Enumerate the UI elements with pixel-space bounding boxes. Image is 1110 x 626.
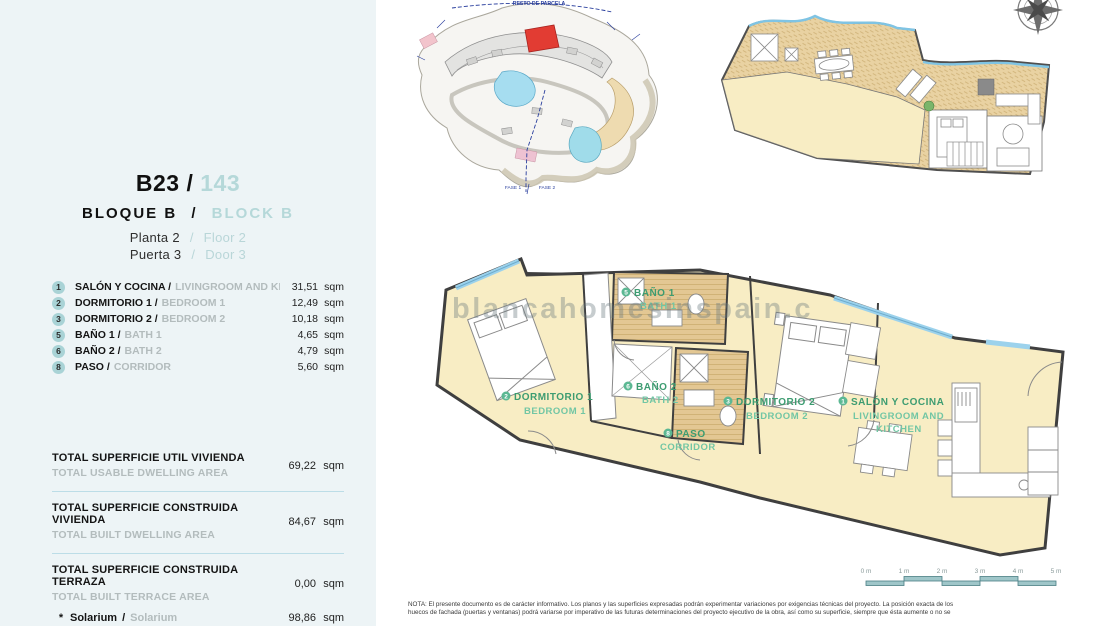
bath1-es: BAÑO 1 [634, 286, 675, 299]
room-area: 31,51 [280, 281, 318, 293]
note-line-2: huecos de fachada (puertas y ventanas) p… [408, 609, 1108, 617]
total-terrace-block: TOTAL SUPERFICIE CONSTRUIDA TERRAZA TOTA… [52, 556, 344, 626]
salon-en1: LIVINGROOM AND [853, 411, 944, 422]
room-label-es: DORMITORIO 1 / [75, 297, 158, 309]
site-fase1-label: FASE 1 [505, 185, 522, 191]
roof-plant [924, 101, 934, 111]
salon-es: SALÓN Y COCINA [851, 395, 944, 408]
solarium-label-en: Solarium [130, 612, 276, 624]
room-label-es: BAÑO 2 / [75, 345, 121, 357]
total-label-es: TOTAL SUPERFICIE UTIL VIVIENDA [52, 452, 276, 464]
room-unit: sqm [318, 297, 344, 309]
site-resto-label: RESTO DE PARCELA [513, 1, 566, 7]
solarium-label-es: Solarium [70, 612, 117, 624]
total-label-en: TOTAL BUILT TERRACE AREA [52, 591, 276, 603]
room-row-bath1: 5 BAÑO 1 / BATH 1 4,65 sqm [52, 327, 344, 343]
room-row-salon: 1 SALÓN Y COCINA / LIVINGROOM AND KITCHE… [52, 279, 344, 295]
bath2-en: BATH 2 [642, 395, 679, 406]
roof-jacuzzi [1003, 124, 1023, 144]
room-area: 10,18 [280, 313, 318, 325]
divider [52, 553, 344, 554]
room-label-en: BATH 2 [125, 345, 280, 357]
room-label-es: BAÑO 1 / [75, 329, 121, 341]
site-pool-2 [569, 127, 601, 163]
floor-sep: / [184, 230, 200, 245]
roof-gray-unit [978, 79, 994, 95]
room-row-dorm2: 3 DORMITORIO 2 / BEDROOM 2 10,18 sqm [52, 311, 344, 327]
paso-en: CORRIDOR [660, 442, 716, 453]
room-area: 4,65 [280, 329, 318, 341]
scale-label-1: 1 m [899, 568, 910, 575]
total-built-block: TOTAL SUPERFICIE CONSTRUIDA VIVIENDA TOT… [52, 494, 344, 551]
roof-stairs [947, 142, 983, 166]
main-floor-plan: 5 BAÑO 1 BATH 1 2 DORMITORIO 1 BEDROOM 1… [428, 248, 1083, 563]
room-number-badge: 8 [52, 361, 65, 374]
scale-label-2: 2 m [937, 568, 948, 575]
room-row-dorm1: 2 DORMITORIO 1 / BEDROOM 1 12,49 sqm [52, 295, 344, 311]
room-number-badge: 3 [52, 313, 65, 326]
room-label-en: BEDROOM 2 [162, 313, 280, 325]
scale-label-3: 3 m [975, 568, 986, 575]
block-sep: / [183, 205, 205, 222]
solarium-sep: / [117, 612, 130, 624]
room-unit: sqm [318, 361, 344, 373]
total-unit: sqm [316, 578, 344, 590]
paso-es: PASO [676, 429, 706, 440]
scale-label-5: 5 m [1051, 568, 1062, 575]
floor-es: Planta 2 [130, 230, 180, 245]
dorm1-en: BEDROOM 1 [524, 406, 586, 417]
bath2-es: BAÑO 2 [636, 380, 677, 393]
bath2-num: 6 [626, 384, 630, 391]
room-label-en: BEDROOM 1 [162, 297, 280, 309]
salon-en2: KITCHEN [876, 424, 922, 435]
room-label-en: BATH 1 [125, 329, 280, 341]
total-label-en: TOTAL BUILT DWELLING AREA [52, 529, 276, 541]
roof-pergola [751, 34, 778, 61]
block-title: BLOQUE B / BLOCK B [0, 205, 376, 222]
site-plan: RESTO DE PARCELA FASE 1 FASE 2 [407, 0, 672, 200]
solarium-unit: sqm [316, 612, 344, 624]
total-label-es: TOTAL SUPERFICIE CONSTRUIDA TERRAZA [52, 564, 276, 588]
total-value: 0,00 [276, 578, 316, 590]
roof-side-table [785, 48, 798, 61]
floor-en: Floor 2 [204, 230, 247, 245]
salon-num: 1 [841, 399, 845, 406]
info-panel: B23 / 143 BLOQUE B / BLOCK B Planta 2 / … [0, 0, 376, 626]
door-en: Door 3 [205, 247, 246, 262]
room-unit: sqm [318, 345, 344, 357]
dorm2-es: DORMITORIO 2 [736, 397, 815, 408]
divider [52, 491, 344, 492]
site-highlighted-building [525, 25, 559, 52]
room-unit: sqm [318, 313, 344, 325]
roof-plan [697, 2, 1072, 192]
unit-number: 143 [200, 170, 240, 196]
disclaimer-note: NOTA: El presente documento es de caráct… [408, 601, 1108, 616]
room-label-en: CORRIDOR [114, 361, 280, 373]
total-unit: sqm [316, 460, 344, 472]
room-label-es: SALÓN Y COCINA / [75, 281, 171, 293]
dorm2-en: BEDROOM 2 [746, 411, 808, 422]
door-es: Puerta 3 [130, 247, 182, 262]
scale-label-0: 0 m [861, 568, 872, 575]
room-unit: sqm [318, 329, 344, 341]
total-usable-block: TOTAL SUPERFICIE UTIL VIVIENDA TOTAL USA… [52, 444, 344, 489]
total-label-en: TOTAL USABLE DWELLING AREA [52, 467, 276, 479]
solarium-row: * Solarium / Solarium 98,86 sqm [52, 612, 344, 624]
note-line-1: NOTA: El presente documento es de caráct… [408, 601, 1108, 609]
dorm2-num: 3 [726, 399, 730, 406]
site-fase2-label: FASE 2 [539, 185, 556, 191]
room-area: 5,60 [280, 361, 318, 373]
scale-bar: 0 m 1 m 2 m 3 m 4 m 5 m [858, 565, 1064, 593]
bath1-num: 5 [624, 290, 628, 297]
solarium-asterisk: * [52, 612, 70, 624]
door-sep: / [185, 247, 201, 262]
room-number-badge: 2 [52, 297, 65, 310]
room-area: 4,79 [280, 345, 318, 357]
unit-code: B23 / [136, 170, 193, 196]
dorm1-es: DORMITORIO 1 [514, 392, 593, 403]
room-area: 12,49 [280, 297, 318, 309]
room-list: 1 SALÓN Y COCINA / LIVINGROOM AND KITCHE… [52, 279, 344, 375]
room-label-es: PASO / [75, 361, 110, 373]
bath1-en: BATH 1 [640, 301, 677, 312]
room-number-badge: 5 [52, 329, 65, 342]
scale-label-4: 4 m [1013, 568, 1024, 575]
room-row-paso: 8 PASO / CORRIDOR 5,60 sqm [52, 359, 344, 375]
roof-unit-2 [997, 148, 1029, 166]
total-value: 69,22 [276, 460, 316, 472]
solarium-value: 98,86 [276, 612, 316, 624]
unit-title: B23 / 143 [0, 170, 376, 197]
room-number-badge: 6 [52, 345, 65, 358]
room-row-bath2: 6 BAÑO 2 / BATH 2 4,79 sqm [52, 343, 344, 359]
room-label-es: DORMITORIO 2 / [75, 313, 158, 325]
total-value: 84,67 [276, 516, 316, 528]
room-unit: sqm [318, 281, 344, 293]
total-unit: sqm [316, 516, 344, 528]
floor-line: Planta 2 / Floor 2 [0, 230, 376, 245]
floorplan-sheet: B23 / 143 BLOQUE B / BLOCK B Planta 2 / … [0, 0, 1110, 626]
room-number-badge: 1 [52, 281, 65, 294]
block-es: BLOQUE B [82, 205, 177, 222]
room-label-en: LIVINGROOM AND KITCHEN [175, 281, 280, 293]
door-line: Puerta 3 / Door 3 [0, 247, 376, 262]
totals-section: TOTAL SUPERFICIE UTIL VIVIENDA TOTAL USA… [52, 444, 344, 626]
dorm1-num: 2 [504, 394, 508, 401]
total-label-es: TOTAL SUPERFICIE CONSTRUIDA VIVIENDA [52, 502, 276, 526]
block-en: BLOCK B [212, 205, 294, 222]
paso-num: 8 [666, 431, 670, 438]
